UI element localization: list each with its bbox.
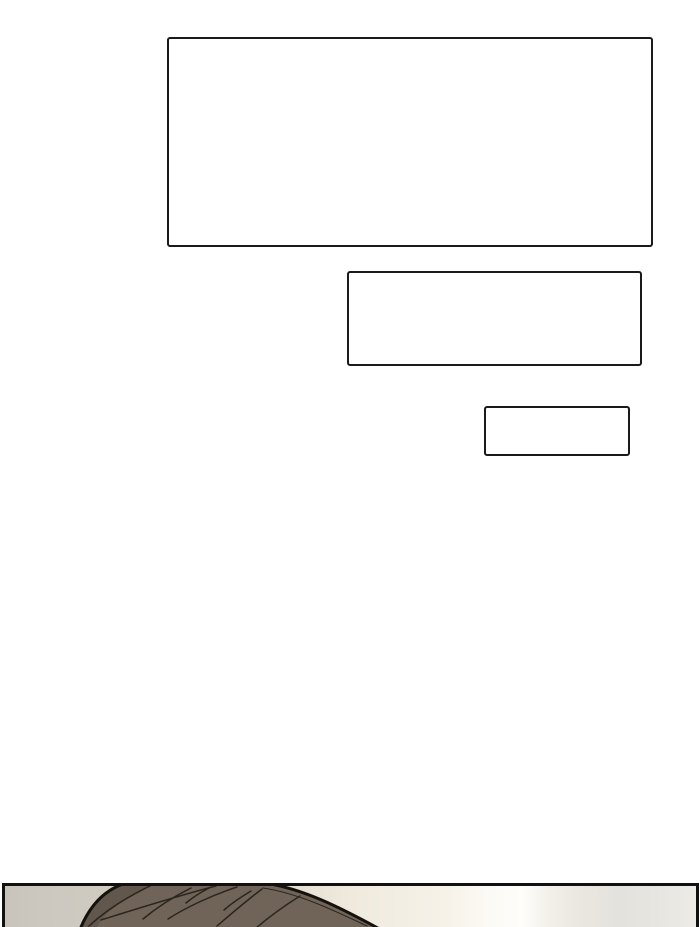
speech-box-medium <box>347 271 642 366</box>
bottom-comic-panel <box>2 883 699 927</box>
character-head-top <box>5 886 696 927</box>
comic-page <box>0 0 700 927</box>
speech-box-small <box>484 406 630 456</box>
speech-box-large <box>167 37 653 247</box>
